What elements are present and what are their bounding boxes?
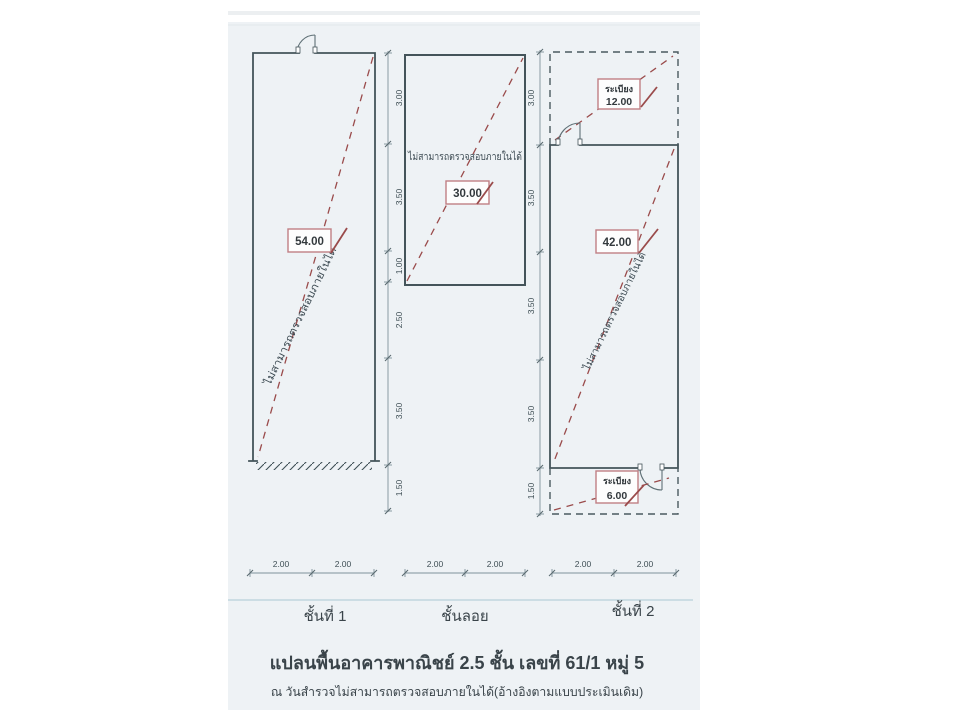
floor2-bottom-balcony-label: ระเบียง 6.00: [596, 471, 644, 506]
floor2-dim-2: 3.50: [526, 297, 536, 314]
document-subtitle: ณ วันสำรวจไม่สามารถตรวจสอบภายในได้(อ้างอ…: [271, 685, 643, 699]
balcony-top-label: ระเบียง: [605, 84, 633, 94]
floor1-hatched-edge: [256, 462, 372, 470]
floor-plan-drawing: ไม่สามารถตรวจสอบภายในได้ 54.00 3.00 3.50…: [0, 0, 960, 720]
floor1-dim-1: 3.50: [394, 188, 404, 205]
floor1-dim-5: 1.50: [394, 479, 404, 496]
floor1-name-label: ชั้นที่ 1: [304, 605, 347, 625]
scanned-floor-plan-page: ไม่สามารถตรวจสอบภายในได้ 54.00 3.00 3.50…: [0, 0, 960, 720]
floor1-area-value: 54.00: [295, 236, 324, 248]
floor2-dim-3: 3.50: [526, 405, 536, 422]
floor2-dim-0: 3.00: [526, 89, 536, 106]
floor2-name-label: ชั้นที่ 2: [612, 600, 655, 620]
floor1-dim-4: 3.50: [394, 402, 404, 419]
scan-streak: [228, 11, 700, 15]
balcony-bottom-area: 6.00: [607, 490, 628, 502]
floor2-area-value: 42.00: [603, 237, 632, 249]
mezzanine-note: ไม่สามารถตรวจสอบภายในได้: [407, 150, 522, 163]
floor1-hdim-1: 2.00: [335, 559, 352, 569]
floor2-hdim-0: 2.00: [575, 559, 592, 569]
floor1-hdim-0: 2.00: [273, 559, 290, 569]
document-title: แปลนพื้นอาคารพาณิชย์ 2.5 ชั้น เลขที่ 61/…: [270, 649, 644, 675]
mezzanine-area-value: 30.00: [453, 188, 482, 200]
balcony-bottom-label: ระเบียง: [603, 476, 631, 486]
mezzanine-area-label: 30.00: [446, 181, 493, 204]
mezzanine-hdim-1: 2.00: [487, 559, 504, 569]
floor2-dim-4: 1.50: [526, 482, 536, 499]
mezzanine-name-label: ชั้นลอย: [441, 605, 488, 625]
floor1-dim-0: 3.00: [394, 89, 404, 106]
floor1-dim-3: 2.50: [394, 311, 404, 328]
floor1-dim-2: 1.00: [394, 257, 404, 274]
mezzanine-hdim-0: 2.00: [427, 559, 444, 569]
floor2-dim-1: 3.50: [526, 189, 536, 206]
balcony-top-area: 12.00: [606, 96, 632, 108]
floor2-hdim-1: 2.00: [637, 559, 654, 569]
